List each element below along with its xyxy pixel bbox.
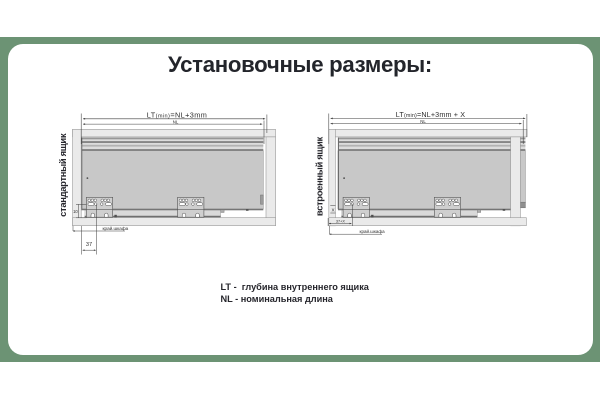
- svg-text:край.шкафа: край.шкафа: [103, 225, 129, 231]
- svg-text:LT(min)=NL+3mm + X: LT(min)=NL+3mm + X: [396, 110, 465, 119]
- svg-text:NL: NL: [173, 119, 179, 124]
- svg-text:NL: NL: [420, 119, 426, 124]
- svg-text:стандартный ящик: стандартный ящик: [57, 133, 68, 217]
- svg-text:10: 10: [73, 209, 78, 214]
- svg-text:X: X: [331, 207, 334, 212]
- svg-text:LT(min)=NL+3mm: LT(min)=NL+3mm: [147, 110, 207, 119]
- svg-text:встроенный ящик: встроенный ящик: [313, 136, 324, 216]
- svg-text:37+X: 37+X: [336, 219, 345, 223]
- svg-text:край.шкафа: край.шкафа: [360, 228, 386, 234]
- svg-text:37: 37: [86, 242, 92, 248]
